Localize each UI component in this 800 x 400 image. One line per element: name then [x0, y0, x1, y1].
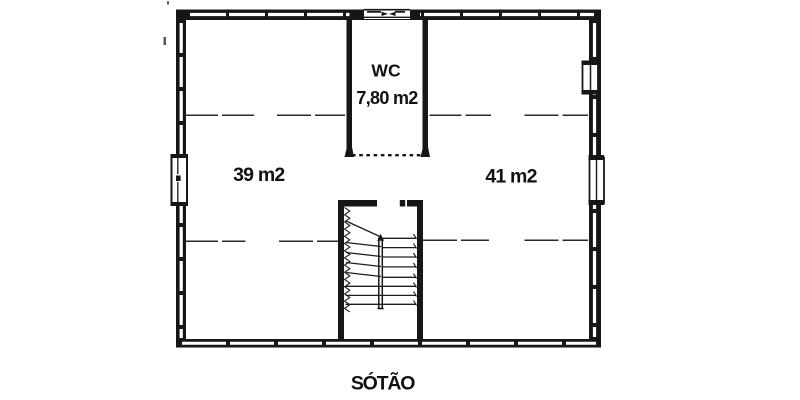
svg-text:41 m2: 41 m2: [485, 166, 537, 188]
svg-text:SÓTÃO: SÓTÃO: [351, 371, 415, 395]
svg-text:39 m2: 39 m2: [233, 164, 285, 186]
svg-text:WC: WC: [371, 61, 401, 81]
svg-text:7,80 m2: 7,80 m2: [356, 88, 418, 108]
